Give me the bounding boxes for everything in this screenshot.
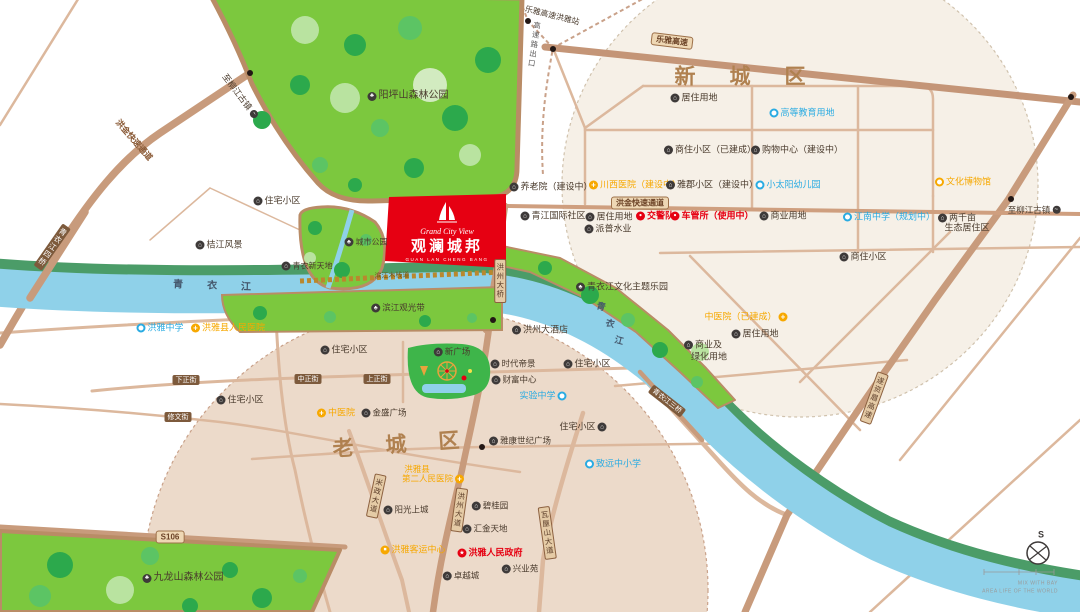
b-icon: ⌂ [490, 360, 499, 369]
map-label: 中医院（已建成）+ [704, 313, 787, 322]
b-icon: ⌂ [520, 212, 529, 221]
map-label: 青衣江四桥 [33, 223, 70, 270]
map-label: 青衣江 [173, 280, 275, 294]
map-label-text: 修文街 [165, 412, 192, 422]
map-label: +中医院 [317, 409, 355, 418]
map-label: ⌂居住用地 [585, 213, 632, 222]
map-labels-layer: 乐雅高速洪雅站乐雅高速高速路出口新城区至柳江古镇~♣阳坪山森林公园洪金快速通道⌂… [0, 0, 1080, 612]
map-label: ⌂卓越城 [443, 572, 480, 581]
map-label: 致远中小学 [585, 460, 641, 469]
b-icon: ⌂ [320, 346, 329, 355]
b-icon: ⌂ [751, 146, 760, 155]
map-label-text: 金盛广场 [372, 409, 406, 418]
map-label: ■洪雅客运中心 [380, 546, 445, 555]
map-label-text: 遂资眉高速 [860, 371, 889, 425]
tree-icon: ♣ [143, 574, 152, 583]
map-label-text: 滨江观光带 [382, 304, 425, 313]
map-label: ⌂购物中心（建设中） [751, 146, 843, 155]
map-label: 青 [595, 301, 606, 312]
map-label: ⌂汇金天地 [462, 525, 507, 534]
map-label: 洪雅县 [404, 465, 430, 474]
b-icon: ⌂ [585, 213, 594, 222]
map-label-text: 商业用地 [770, 212, 806, 221]
b-icon: ⌂ [664, 146, 673, 155]
map-label: 修文街 [165, 412, 192, 422]
map-label: ⌂居住用地 [670, 94, 717, 103]
map-label-text: 兴业苑 [513, 565, 539, 574]
map-label-text: 养老院（建设中） [520, 183, 592, 192]
map-label-text: 城市公园 [356, 238, 388, 246]
map-label-text: 老城区 [332, 428, 492, 460]
map-label: 绿化用地 [691, 353, 727, 362]
map-label: ⌂新广场 [434, 348, 471, 357]
map-label: 第二人民医院+ [402, 475, 464, 484]
map-label: ♣滨江观光带 [371, 304, 425, 313]
b-icon: ⌂ [195, 241, 204, 250]
map-label-text: 江 [613, 335, 624, 346]
b-icon: ⌂ [509, 183, 518, 192]
map-label-text: 第二人民医院 [402, 475, 453, 484]
map-label: 上正街 [364, 374, 391, 384]
b-icon: ⌂ [598, 423, 607, 432]
b-icon: ⌂ [216, 396, 225, 405]
map-label: ⌂商业及 [684, 341, 722, 350]
map-label-text: 新城区 [675, 67, 840, 88]
map-label-text: MIX WITH BAY [1018, 582, 1058, 587]
map-label: 江 [613, 335, 624, 346]
map-label-text: 碧桂园 [483, 502, 509, 511]
map-label: 高等教育用地 [769, 109, 834, 118]
o-icon [136, 324, 145, 333]
map-label: 至柳江古镇~ [221, 72, 259, 119]
map-label: MIX WITH BAY [1018, 582, 1058, 587]
map-label-text: 绿化用地 [691, 353, 727, 362]
map-label: S [1038, 531, 1044, 540]
map-label-text: 商住小区 [850, 253, 886, 262]
map-label-text: 洪雅客运中心 [391, 546, 445, 555]
map-label: 新城区 [675, 67, 840, 88]
map-label-text: 至柳江古镇 [221, 72, 253, 111]
map-label: 生态居住区 [944, 224, 989, 233]
b-icon: ⌂ [434, 348, 443, 357]
map-label-text: 中正街 [295, 374, 322, 384]
b-icon: ⌂ [462, 525, 471, 534]
map-label: 洪雅中学 [136, 324, 183, 333]
map-label-text: 洪州大酒店 [523, 326, 568, 335]
map-label-text: 财富中心 [502, 376, 536, 385]
map-label: ⌂两千亩 [938, 214, 976, 223]
map-label-text: 住宅小区 [331, 346, 367, 355]
map-label: 住宅小区⌂ [559, 423, 606, 432]
map-label-text: 住宅小区 [574, 360, 610, 369]
map-label-text: 车管所（使用中） [681, 212, 753, 221]
b-icon: ⌂ [759, 212, 768, 221]
h-icon: + [317, 409, 326, 418]
b-icon: ⌂ [584, 225, 593, 234]
map-label-text: 乐雅高速 [650, 32, 693, 50]
map-label: 实验中学 [519, 392, 566, 401]
map-label-text: 江南中学（规划中） [854, 213, 935, 222]
map-label: ⌂洪州大酒店 [512, 326, 568, 335]
map-label-text: 住宅小区 [264, 197, 300, 206]
r-icon: ● [670, 212, 679, 221]
b-icon: ⌂ [472, 502, 481, 511]
map-label-text: 青 [595, 301, 606, 312]
b-icon: ⌂ [361, 409, 370, 418]
o-icon [843, 213, 852, 222]
map-label-text: S106 [156, 531, 185, 544]
map-label-text: 九龙山森林公园 [154, 573, 224, 583]
map-label-text: 居住用地 [742, 330, 778, 339]
map-label-text: 中医院（已建成） [704, 313, 776, 322]
map-label: S106 [156, 531, 185, 544]
map-label: ⌂时代帝景 [490, 360, 535, 369]
b-icon: ⌂ [383, 506, 392, 515]
map-label: 洪金快速通道 [611, 197, 669, 210]
map-label-text: 上正街 [364, 374, 391, 384]
map-label: ♣青衣江文化主题乐园 [576, 283, 668, 292]
map-label: ●交警队 [636, 212, 674, 221]
map-label-text: 阳坪山森林公园 [379, 91, 449, 101]
map-label: 小太阳幼儿园 [755, 181, 820, 190]
map-label-text: 雅康世纪广场 [500, 437, 551, 446]
map-label: 老城区 [332, 428, 492, 460]
map-label: ⌂养老院（建设中） [509, 183, 592, 192]
map-label: 洪金快速通道 [114, 118, 154, 162]
o-icon [585, 460, 594, 469]
map-label-text: 致远中小学 [596, 460, 641, 469]
map-label-text: 滨江木栈道 [374, 272, 409, 280]
tree-icon: ♣ [371, 304, 380, 313]
map-label-text: 商住小区（已建成） [675, 146, 756, 155]
map-label-text: 卓越城 [454, 572, 480, 581]
map-label-text: 瓦屋山大道 [538, 506, 557, 560]
map-label-text: 小太阳幼儿园 [766, 181, 820, 190]
map-label-text: 住宅小区 [227, 396, 263, 405]
map-label: ⌂住宅小区 [563, 360, 610, 369]
map-label: 乐雅高速 [650, 32, 693, 50]
map-label-text: 洪雅县 [404, 465, 430, 474]
map-label: AREA LIFE OF THE WORLD [982, 590, 1058, 595]
map-label-text: 阳光上城 [394, 506, 428, 515]
map-label-text: 商业及 [695, 341, 722, 350]
bus-icon: ■ [380, 546, 389, 555]
map-label: ⌂阳光上城 [383, 506, 428, 515]
map-label: ⌂居住用地 [731, 330, 778, 339]
o-icon [755, 181, 764, 190]
b-icon: ⌂ [684, 341, 693, 350]
map-label: 中正街 [295, 374, 322, 384]
map-label-text: 洪雅中学 [147, 324, 183, 333]
map-label: ⌂青江国际社区 [520, 212, 585, 221]
map-label-text: 青衣江四桥 [33, 223, 70, 270]
map-label-text: 至柳江古镇 [1008, 206, 1051, 215]
map-label: 文化博物馆 [935, 178, 991, 187]
map-label-text: 文化博物馆 [946, 178, 991, 187]
map-label: 瓦屋山大道 [538, 506, 557, 560]
map-label-text: 新广场 [445, 348, 471, 357]
map-label-text: 青江国际社区 [531, 212, 585, 221]
mark-icon: ~ [248, 108, 259, 119]
r-icon: ● [636, 212, 645, 221]
map-label: ⌂商住小区（已建成） [664, 146, 756, 155]
map-label-text: 实验中学 [519, 392, 555, 401]
map-label: ⌂财富中心 [491, 376, 536, 385]
map-label: 青衣江三桥 [648, 384, 686, 417]
b-icon: ⌂ [282, 262, 291, 271]
b-icon: ⌂ [502, 565, 511, 574]
map-label: ⌂桔江风景 [195, 241, 242, 250]
b-icon: ⌂ [563, 360, 572, 369]
tree-icon: ♣ [368, 92, 377, 101]
map-label-text: 洪州大桥 [494, 259, 506, 303]
map-label-text: 高速路出口 [527, 21, 541, 69]
map-label-text: 下正街 [173, 375, 200, 385]
map-label-text: S [1038, 531, 1044, 540]
o-icon [558, 392, 567, 401]
location-map: Grand City View 观澜城邦 GUAN LAN CHENG BANG… [0, 0, 1080, 612]
map-label-text: 青衣江 [173, 280, 275, 294]
tree-icon: ♣ [576, 283, 585, 292]
mark-icon: ~ [1052, 206, 1060, 214]
map-label: ⌂住宅小区 [320, 346, 367, 355]
h-icon: + [191, 324, 200, 333]
map-label: ⌂商住小区 [839, 253, 886, 262]
map-label: ⌂碧桂园 [472, 502, 509, 511]
map-label-text: 高等教育用地 [780, 109, 834, 118]
o-icon [769, 109, 778, 118]
map-label: ♣阳坪山森林公园 [368, 91, 449, 101]
map-label-text: 衣 [604, 318, 615, 329]
map-label: ⌂金盛广场 [361, 409, 406, 418]
h-icon: + [779, 313, 788, 322]
map-label: ⌂雅郡小区（建设中） [666, 181, 758, 190]
b-icon: ⌂ [512, 326, 521, 335]
map-label: 至柳江古镇~ [1008, 206, 1061, 215]
map-label-text: 洪金快速通道 [114, 118, 154, 162]
map-label: ⌂兴业苑 [502, 565, 539, 574]
map-label-text: 汇金天地 [473, 525, 507, 534]
map-label: ⌂住宅小区 [253, 197, 300, 206]
map-label: +洪雅县人民医院 [191, 324, 265, 333]
map-label: ★洪雅人民政府 [457, 549, 522, 558]
map-label-text: 桔江风景 [206, 241, 242, 250]
map-label: 下正街 [173, 375, 200, 385]
map-label: ⌂住宅小区 [216, 396, 263, 405]
map-label: ♣城市公园 [345, 238, 388, 247]
b-icon: ⌂ [938, 214, 947, 223]
tree-icon: ♣ [345, 238, 354, 247]
star-icon: ★ [457, 549, 466, 558]
map-label-text: 生态居住区 [944, 224, 989, 233]
map-label: ⌂派普水业 [584, 225, 631, 234]
map-label: ♣九龙山森林公园 [143, 573, 224, 583]
map-label-text: 洪雅县人民医院 [202, 324, 265, 333]
map-label: ⌂青衣新天地 [282, 262, 333, 271]
map-label: ⌂雅康世纪广场 [489, 437, 551, 446]
b-icon: ⌂ [666, 181, 675, 190]
map-label-text: 购物中心（建设中） [762, 146, 843, 155]
map-label: 滨江木栈道 [374, 272, 409, 280]
map-label-text: 洪金快速通道 [611, 197, 669, 210]
map-label: 衣 [604, 318, 615, 329]
map-label-text: 青衣新天地 [293, 262, 333, 270]
h-icon: + [455, 475, 464, 484]
map-label: 遂资眉高速 [860, 371, 889, 425]
map-label-text: 居住用地 [681, 94, 717, 103]
map-label-text: 时代帝景 [501, 360, 535, 369]
map-label-text: 洪雅人民政府 [468, 549, 522, 558]
map-label-text: 派普水业 [595, 225, 631, 234]
map-label-text: AREA LIFE OF THE WORLD [982, 590, 1058, 595]
b-icon: ⌂ [491, 376, 500, 385]
map-label: 江南中学（规划中） [843, 213, 935, 222]
b-icon: ⌂ [731, 330, 740, 339]
map-label: ●车管所（使用中） [670, 212, 753, 221]
b-icon: ⌂ [839, 253, 848, 262]
map-label-text: 雅郡小区（建设中） [677, 181, 758, 190]
map-label: 洪州大桥 [494, 259, 506, 303]
map-label-text: 居住用地 [596, 213, 632, 222]
map-label-text: 中医院 [328, 409, 355, 418]
map-label-text: 住宅小区 [559, 423, 595, 432]
map-label: ⌂商业用地 [759, 212, 806, 221]
map-label-text: 青衣江三桥 [648, 384, 686, 417]
dot-icon [935, 178, 944, 187]
map-label: 高速路出口 [527, 21, 541, 69]
map-label-text: 两千亩 [949, 214, 976, 223]
b-icon: ⌂ [670, 94, 679, 103]
map-label-text: 青衣江文化主题乐园 [587, 283, 668, 292]
b-icon: ⌂ [443, 572, 452, 581]
b-icon: ⌂ [253, 197, 262, 206]
